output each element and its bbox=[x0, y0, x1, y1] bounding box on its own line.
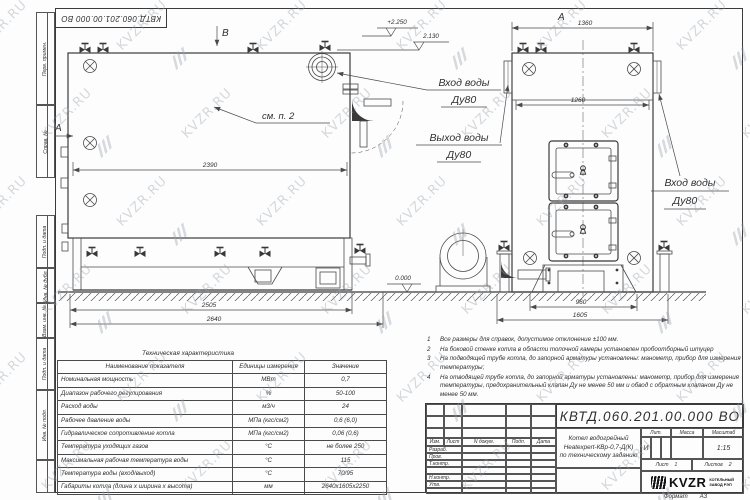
designation-rotated: КВТД.060.201.00.000 ВО bbox=[61, 14, 161, 23]
grid-cell bbox=[531, 488, 556, 494]
grid-cell bbox=[531, 474, 556, 481]
tech-header: Наименование показателя bbox=[58, 361, 233, 374]
section-markers: А В bbox=[54, 26, 229, 136]
top-left-designation-stamp: КВТД.060.201.00.000 ВО bbox=[55, 8, 167, 28]
col-list: Лист bbox=[444, 438, 462, 446]
tech-cell: МВт bbox=[233, 374, 305, 387]
dimensions-side-view: 2390 2505 2640 bbox=[70, 162, 383, 328]
table-row: Диапазон рабочего регулирования%50-100 bbox=[58, 387, 387, 400]
role-razrab: Разраб. bbox=[426, 446, 462, 453]
logo-text: KVZR bbox=[669, 475, 706, 490]
level-top: +2.250 bbox=[387, 19, 407, 26]
col-data: Дата bbox=[531, 438, 556, 446]
dim-2505: 2505 bbox=[201, 302, 217, 309]
dimensions-front-view: 1360 А 1260 960 1605 bbox=[497, 12, 668, 324]
tech-cell: 2640х1605х2250 bbox=[305, 481, 387, 494]
grid-cell bbox=[462, 481, 506, 488]
mass-header: Масса bbox=[671, 428, 703, 437]
note-number: 1 bbox=[427, 336, 435, 345]
change-cell bbox=[444, 404, 462, 416]
role-prov: Пров. bbox=[426, 453, 462, 460]
margin-cell-vzam-inv: Взам. инв. № bbox=[36, 303, 55, 338]
outlet-dn-label: Ду80 bbox=[446, 149, 472, 161]
boiler-base bbox=[73, 238, 352, 290]
table-row: Гидравлическое сопротивление котлаМПа (к… bbox=[58, 427, 387, 440]
dim-1260: 1260 bbox=[571, 97, 586, 104]
note-item: 2На боковой стенке котла в области топоч… bbox=[427, 346, 743, 355]
level-mid: 2.130 bbox=[422, 33, 439, 40]
mass-value bbox=[671, 437, 703, 459]
note-number: 4 bbox=[427, 374, 435, 400]
grid-cell bbox=[506, 453, 531, 460]
table-row: Максимальная рабочая температура воды°С1… bbox=[58, 454, 387, 467]
tech-cell: Температура уходящих газов bbox=[58, 441, 233, 454]
level-marks: +2.250 2.130 0.000 bbox=[337, 19, 449, 292]
margin-cell-perv-primen: Перв. примен. bbox=[36, 12, 55, 105]
upper-door bbox=[549, 141, 618, 201]
document-designation: КВТД.060.201.00.000 ВО bbox=[556, 404, 744, 428]
tech-cell: Номинальная мощность bbox=[58, 374, 233, 387]
lit-header: Лит. bbox=[641, 428, 671, 437]
note-text: На боковой стенке котла в области топочн… bbox=[440, 346, 714, 355]
margin-cell-podp-data-1: Подп. и дата bbox=[36, 215, 55, 268]
note-number: 2 bbox=[427, 346, 435, 355]
margin-cell-empty bbox=[36, 460, 55, 493]
change-cell bbox=[531, 404, 556, 416]
valve-icon bbox=[248, 44, 259, 54]
outlet-water-label: Выход воды bbox=[429, 132, 488, 144]
tech-cell: 0,06 (0,6) bbox=[305, 427, 387, 440]
grid-cell bbox=[531, 446, 556, 453]
table-row: Номинальная мощностьМВт0,7 bbox=[58, 374, 387, 387]
grid-cell bbox=[462, 474, 506, 481]
change-cell bbox=[426, 416, 444, 428]
sheet-cell: Лист 1 bbox=[641, 459, 692, 471]
tech-header-row: Наименование показателя Единицы измерени… bbox=[58, 361, 387, 374]
tech-cell: Габариты котла (длина х ширина х высота) bbox=[58, 481, 233, 494]
tech-cell: °С bbox=[233, 441, 305, 454]
ash-box bbox=[532, 265, 636, 292]
tech-cell: Расход воды bbox=[58, 401, 233, 414]
tech-cell: 24 bbox=[305, 401, 387, 414]
sheets-value: 2 bbox=[729, 462, 732, 468]
col-podp: Подп. bbox=[506, 438, 531, 446]
grid-cell bbox=[462, 488, 506, 494]
grid-cell bbox=[462, 453, 506, 460]
tech-cell: 115 bbox=[305, 454, 387, 467]
grid-cell bbox=[556, 468, 641, 494]
section-b-label: В bbox=[222, 28, 229, 39]
margin-cell-sprav: Справ. № bbox=[36, 105, 55, 178]
tech-cell: Гидравлическое сопротивление котла bbox=[58, 427, 233, 440]
inlet-water-label-2: Вход воды bbox=[665, 177, 716, 189]
col-izm: Изм. bbox=[426, 438, 444, 446]
notes-list: 1Все размеры для справок, допустимое отк… bbox=[427, 336, 743, 401]
note-item: 3На подводящей трубе котла, до запорной … bbox=[427, 355, 743, 372]
tech-cell: Рабочее давление воды bbox=[58, 414, 233, 427]
tech-cell: 70/95 bbox=[305, 468, 387, 481]
kvzr-logo-icon bbox=[651, 476, 666, 489]
rear-piping bbox=[343, 84, 403, 153]
lit-cell bbox=[661, 437, 671, 459]
tech-table: Наименование показателя Единицы измерени… bbox=[57, 360, 387, 495]
grid-cell bbox=[531, 428, 556, 438]
document-title-line1: Котел водогрейный bbox=[569, 435, 629, 444]
grid-cell bbox=[531, 467, 556, 474]
dim-1360: 1360 bbox=[578, 20, 593, 27]
change-cell bbox=[462, 404, 506, 416]
table-row: Рабочее давление водыМПа (кгс/см2)0,6 (6… bbox=[58, 414, 387, 427]
valve-icon bbox=[320, 42, 331, 52]
tech-cell: % bbox=[233, 387, 305, 400]
table-row: Габариты котла (длина х ширина х высота)… bbox=[58, 481, 387, 494]
lit-value: И bbox=[641, 437, 651, 459]
sheets-cell: Листов 2 bbox=[692, 459, 744, 471]
level-zero: 0.000 bbox=[395, 275, 411, 282]
grid-cell bbox=[506, 488, 531, 494]
section-a-label: А bbox=[54, 123, 62, 134]
dim-2390: 2390 bbox=[202, 162, 218, 169]
table-row: Расход водым3/ч24 bbox=[58, 401, 387, 414]
grid-cell bbox=[506, 474, 531, 481]
valve-icon bbox=[98, 44, 109, 54]
margin-cell-podp-data-2: Подп. и дата bbox=[36, 338, 55, 390]
change-cell bbox=[531, 416, 556, 428]
inlet-dn-label-2: Ду80 bbox=[672, 195, 698, 207]
tech-cell: МПа (кгс/см2) bbox=[233, 414, 305, 427]
tech-table-title: Техническая характеристика bbox=[57, 350, 319, 357]
grid-cell bbox=[462, 467, 506, 474]
inlet-water-label-1: Вход воды bbox=[439, 77, 490, 89]
tech-header: Единицы измерения bbox=[233, 361, 305, 374]
sheet-value: 1 bbox=[675, 462, 678, 468]
note-item: 1Все размеры для справок, допустимое отк… bbox=[427, 336, 743, 345]
scale-header: Масштаб bbox=[703, 428, 744, 437]
margin-cell-inv-podl: Инв. № подл. bbox=[36, 390, 55, 460]
ground-line bbox=[58, 292, 706, 301]
margin-cell-inv-dubl: Инв. № дубл. bbox=[36, 268, 55, 303]
table-row: Температура воды (вход/выход)°С70/95 bbox=[58, 468, 387, 481]
grid-cell bbox=[462, 428, 506, 438]
dim-2640: 2640 bbox=[206, 316, 222, 323]
grid-cell bbox=[462, 446, 506, 453]
change-cell bbox=[444, 416, 462, 428]
document-title-line3: по техническому заданию bbox=[560, 452, 638, 461]
tech-cell: °С bbox=[233, 454, 305, 467]
tech-cell: 0,7 bbox=[305, 374, 387, 387]
change-cell bbox=[462, 416, 506, 428]
grid-cell bbox=[462, 460, 506, 467]
change-cell bbox=[506, 404, 531, 416]
scale-value: 1:15 bbox=[703, 437, 744, 459]
document-title-line2: Heatexpert-КВр-0,7-Д(К) bbox=[564, 444, 634, 453]
tech-cell: Максимальная рабочая температура воды bbox=[58, 454, 233, 467]
sheets-label: Листов bbox=[705, 462, 723, 468]
grid-cell bbox=[506, 460, 531, 467]
grid-cell bbox=[506, 446, 531, 453]
title-block: КВТД.060.201.00.000 ВО Изм. Лист N докум… bbox=[425, 403, 743, 493]
grid-cell bbox=[506, 428, 531, 438]
grid-cell bbox=[531, 460, 556, 467]
boiler-side-view bbox=[61, 42, 403, 291]
tech-cell: МПа (кгс/см2) bbox=[233, 427, 305, 440]
company-logo: KVZR КОТЕЛЬНЫЙ ЗАВОД РЭП bbox=[641, 471, 744, 494]
grid-cell bbox=[531, 481, 556, 488]
dim-960: 960 bbox=[576, 299, 587, 306]
boiler-front-view bbox=[497, 40, 672, 296]
format-label: Формат А3 bbox=[628, 493, 743, 500]
note-text: Все размеры для справок, допустимое откл… bbox=[440, 336, 618, 345]
valve-icon bbox=[80, 44, 91, 54]
tech-cell: Диапазон рабочего регулирования bbox=[58, 387, 233, 400]
note-text: На подводящей трубе котла, до запорной а… bbox=[440, 355, 743, 372]
dim-1605: 1605 bbox=[573, 312, 588, 319]
tech-cell: м3/ч bbox=[233, 401, 305, 414]
note-text: На отводящей трубе котла, до запорной ар… bbox=[440, 374, 743, 400]
inlet-dn-label-1: Ду80 bbox=[451, 94, 477, 106]
grid-cell bbox=[426, 428, 444, 438]
document-title: Котел водогрейный Heatexpert-КВр-0,7-Д(К… bbox=[556, 428, 641, 468]
tech-cell: °С bbox=[233, 468, 305, 481]
tech-cell: 50-100 bbox=[305, 387, 387, 400]
tech-cell: не более 250 bbox=[305, 441, 387, 454]
sheet-label: Лист bbox=[656, 462, 669, 468]
tech-cell: Температура воды (вход/выход) bbox=[58, 468, 233, 481]
tech-cell: 0,6 (6,0) bbox=[305, 414, 387, 427]
note-number: 3 bbox=[427, 355, 435, 372]
grid-cell bbox=[531, 453, 556, 460]
grid-cell bbox=[426, 467, 462, 474]
grid-cell bbox=[506, 481, 531, 488]
grid-cell bbox=[426, 488, 462, 494]
change-cell bbox=[426, 404, 444, 416]
note-item: 4На отводящей трубе котла, до запорной а… bbox=[427, 374, 743, 400]
role-utv: Утв. bbox=[426, 481, 462, 488]
table-row: Температура уходящих газов°Сне более 250 bbox=[58, 441, 387, 454]
tech-header: Значение bbox=[305, 361, 387, 374]
col-docum: N докум. bbox=[462, 438, 506, 446]
tech-cell: мм bbox=[233, 481, 305, 494]
role-tkontr: Т.контр. bbox=[426, 460, 462, 467]
pipe-labels: см. п. 2 Вход воды Ду80 Выход воды Ду80 … bbox=[214, 73, 729, 209]
lit-cell bbox=[651, 437, 661, 459]
view-a-label: А bbox=[557, 12, 565, 23]
role-nkontr: Н.контр. bbox=[426, 474, 462, 481]
grid-cell bbox=[506, 467, 531, 474]
drawing-sheet: КВТД.060.201.00.000 ВО Перв. примен. Спр… bbox=[0, 0, 750, 500]
change-cell bbox=[506, 416, 531, 428]
logo-subtitle-2: ЗАВОД РЭП bbox=[709, 483, 734, 488]
grid-cell bbox=[444, 428, 462, 438]
lower-door bbox=[549, 203, 618, 261]
callout-see-note: см. п. 2 bbox=[262, 111, 295, 122]
inlet-flange bbox=[306, 51, 338, 83]
